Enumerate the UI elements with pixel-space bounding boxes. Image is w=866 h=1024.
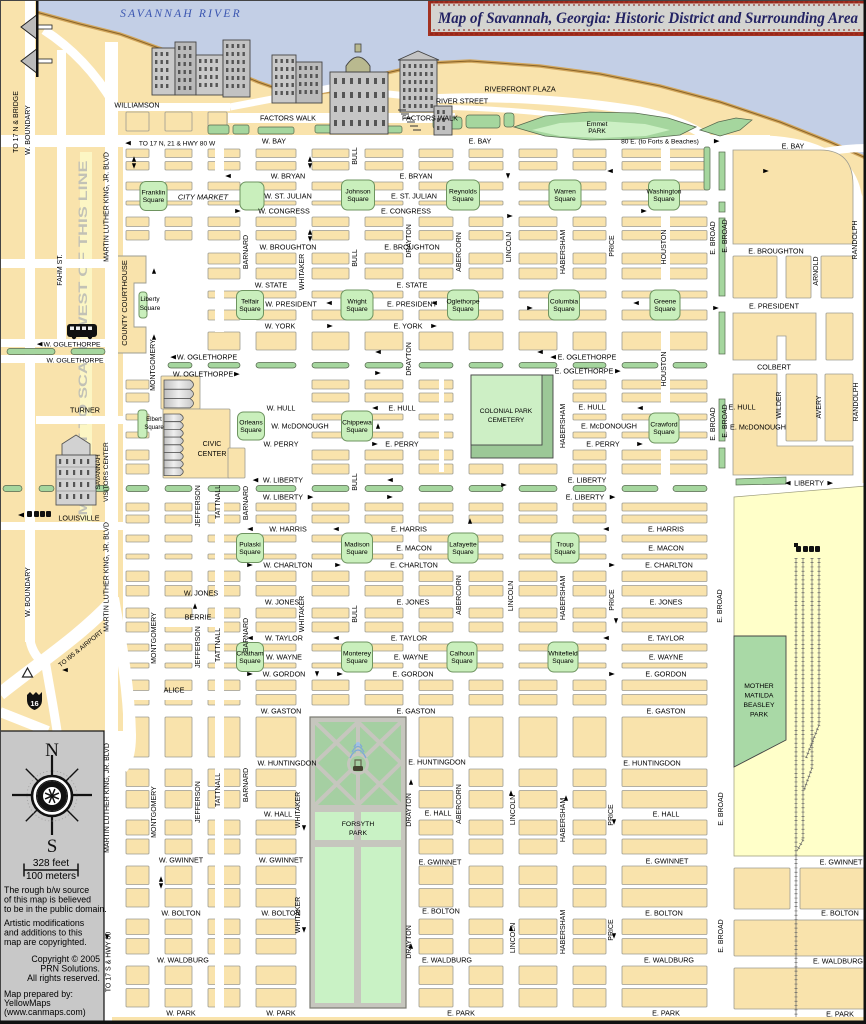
svg-text:E. JONES: E. JONES bbox=[650, 597, 683, 606]
svg-text:Square: Square bbox=[240, 427, 262, 434]
svg-text:Calhoun: Calhoun bbox=[450, 651, 475, 658]
svg-text:E. HARRIS: E. HARRIS bbox=[391, 524, 427, 533]
svg-text:WILLIAMSON: WILLIAMSON bbox=[114, 100, 159, 109]
svg-text:E. BROAD: E. BROAD bbox=[722, 219, 729, 252]
svg-text:DRAYTON: DRAYTON bbox=[406, 224, 413, 258]
svg-text:W. WALDBURG: W. WALDBURG bbox=[157, 955, 209, 964]
svg-text:WHITAKER: WHITAKER bbox=[295, 897, 302, 933]
svg-text:BARNARD: BARNARD bbox=[243, 486, 250, 520]
svg-text:W. CHARLTON: W. CHARLTON bbox=[263, 560, 312, 569]
svg-text:E. TAYLOR: E. TAYLOR bbox=[648, 633, 684, 642]
svg-text:BARNARD: BARNARD bbox=[243, 235, 250, 269]
svg-text:E. BROAD: E. BROAD bbox=[710, 221, 717, 254]
svg-text:COLBERT: COLBERT bbox=[757, 362, 791, 371]
svg-text:Franklin: Franklin bbox=[142, 190, 166, 197]
svg-text:WHITAKER: WHITAKER bbox=[295, 792, 302, 828]
svg-text:Columbia: Columbia bbox=[550, 299, 579, 306]
svg-text:VISITORS CENTER: VISITORS CENTER bbox=[103, 442, 110, 502]
svg-text:Copyright © 2005: Copyright © 2005 bbox=[31, 954, 100, 964]
svg-text:E. HARRIS: E. HARRIS bbox=[648, 524, 684, 533]
svg-text:WHITAKER: WHITAKER bbox=[299, 254, 306, 290]
svg-text:W. BAY: W. BAY bbox=[262, 136, 286, 145]
svg-text:and additions to this: and additions to this bbox=[4, 928, 83, 938]
svg-text:RIVER STREET: RIVER STREET bbox=[436, 96, 489, 105]
svg-text:W. OGLETHORPE: W. OGLETHORPE bbox=[177, 352, 238, 361]
svg-text:W. LIBERTY: W. LIBERTY bbox=[263, 492, 303, 501]
svg-text:W. YORK: W. YORK bbox=[265, 321, 296, 330]
svg-text:Square: Square bbox=[346, 549, 368, 556]
svg-text:Artistic modifications: Artistic modifications bbox=[4, 918, 85, 928]
svg-text:Map of Savannah, Georgia: Hist: Map of Savannah, Georgia: Historic Distr… bbox=[437, 10, 858, 27]
svg-text:HABERSHAM: HABERSHAM bbox=[560, 230, 567, 275]
svg-text:Square: Square bbox=[239, 306, 261, 313]
svg-text:Square: Square bbox=[553, 306, 575, 313]
svg-text:E. CHARLTON: E. CHARLTON bbox=[645, 560, 693, 569]
svg-text:W. McDONOUGH: W. McDONOUGH bbox=[271, 421, 329, 430]
svg-text:E. CHARLTON: E. CHARLTON bbox=[390, 560, 438, 569]
svg-text:E. PARK: E. PARK bbox=[447, 1008, 475, 1017]
svg-text:ALICE: ALICE bbox=[164, 685, 185, 694]
svg-text:W. GASTON: W. GASTON bbox=[261, 706, 302, 715]
svg-text:W. JONES: W. JONES bbox=[184, 588, 219, 597]
svg-text:TATTNALL: TATTNALL bbox=[215, 628, 222, 662]
svg-text:E. BOLTON: E. BOLTON bbox=[821, 908, 859, 917]
svg-text:E. GASTON: E. GASTON bbox=[646, 706, 685, 715]
svg-text:Square: Square bbox=[653, 196, 675, 203]
svg-text:The rough b/w source: The rough b/w source bbox=[4, 885, 89, 895]
svg-text:Square: Square bbox=[143, 197, 165, 204]
svg-text:E. WAYNE: E. WAYNE bbox=[394, 652, 429, 661]
svg-text:MONTGOMERY: MONTGOMERY bbox=[150, 339, 157, 391]
svg-text:Lafayette: Lafayette bbox=[449, 542, 477, 549]
svg-text:HABERSHAM: HABERSHAM bbox=[560, 910, 567, 955]
svg-text:W. CONGRESS: W. CONGRESS bbox=[258, 206, 310, 215]
svg-text:16: 16 bbox=[30, 699, 38, 708]
svg-text:SAVANNAH RIVER: SAVANNAH RIVER bbox=[120, 8, 242, 20]
svg-text:ABERCORN: ABERCORN bbox=[456, 575, 463, 615]
svg-text:80 E. (to Forts & Beaches): 80 E. (to Forts & Beaches) bbox=[621, 138, 699, 145]
svg-text:FORSYTH: FORSYTH bbox=[342, 821, 375, 828]
svg-text:W. WAYNE: W. WAYNE bbox=[266, 652, 302, 661]
svg-text:E. HUNTINGDON: E. HUNTINGDON bbox=[408, 757, 466, 766]
svg-text:AVERY: AVERY bbox=[816, 395, 823, 418]
svg-text:E. CONGRESS: E. CONGRESS bbox=[381, 206, 431, 215]
svg-text:TO 17 N, 21 & HWY 80 W: TO 17 N, 21 & HWY 80 W bbox=[139, 140, 216, 147]
svg-text:to be in the public domain.: to be in the public domain. bbox=[4, 904, 107, 914]
svg-text:CENTER: CENTER bbox=[198, 451, 227, 458]
svg-text:Liberty: Liberty bbox=[140, 296, 160, 303]
svg-text:E. WALDBURG: E. WALDBURG bbox=[644, 955, 694, 964]
svg-text:HABERSHAM: HABERSHAM bbox=[560, 404, 567, 449]
svg-text:SAVANNAH: SAVANNAH bbox=[95, 454, 102, 490]
svg-text:WHITAKER: WHITAKER bbox=[299, 596, 306, 632]
svg-text:S: S bbox=[47, 836, 58, 857]
svg-text:E. McDONOUGH: E. McDONOUGH bbox=[730, 422, 786, 431]
svg-text:W. JONES: W. JONES bbox=[265, 597, 300, 606]
svg-text:Crawford: Crawford bbox=[650, 422, 677, 429]
svg-text:Square: Square bbox=[140, 305, 161, 312]
svg-text:Square: Square bbox=[654, 306, 676, 313]
svg-text:DRAYTON: DRAYTON bbox=[406, 342, 413, 376]
svg-text:W. OGLETHORPE: W. OGLETHORPE bbox=[173, 369, 234, 378]
svg-text:E. LIBERTY: E. LIBERTY bbox=[566, 492, 605, 501]
svg-text:E. MACON: E. MACON bbox=[648, 543, 684, 552]
svg-text:E. GWINNET: E. GWINNET bbox=[820, 857, 863, 866]
svg-text:E. HALL: E. HALL bbox=[425, 808, 452, 817]
svg-text:W. BOUNDARY: W. BOUNDARY bbox=[25, 567, 32, 617]
svg-text:Square: Square bbox=[346, 427, 368, 434]
svg-text:Telfair: Telfair bbox=[241, 299, 260, 306]
svg-text:PRICE: PRICE bbox=[609, 235, 616, 257]
svg-text:W. PARK: W. PARK bbox=[266, 1008, 296, 1017]
svg-text:Square: Square bbox=[452, 549, 474, 556]
svg-text:W. OGLETHORPE: W. OGLETHORPE bbox=[43, 341, 100, 348]
svg-text:ABERCORN: ABERCORN bbox=[456, 784, 463, 824]
svg-text:BEASLEY: BEASLEY bbox=[744, 702, 775, 709]
svg-text:MONTGOMERY: MONTGOMERY bbox=[151, 786, 158, 838]
svg-text:MOTHER: MOTHER bbox=[744, 683, 774, 690]
svg-text:E. GASTON: E. GASTON bbox=[396, 706, 435, 715]
svg-text:E. GWINNET: E. GWINNET bbox=[646, 856, 689, 865]
svg-text:Madison: Madison bbox=[344, 542, 370, 549]
svg-text:Square: Square bbox=[239, 549, 261, 556]
svg-text:JEFFERSON: JEFFERSON bbox=[195, 781, 202, 823]
svg-text:Square: Square bbox=[347, 196, 369, 203]
svg-text:E. PRESIDENT: E. PRESIDENT bbox=[387, 299, 438, 308]
svg-text:MONTGOMERY: MONTGOMERY bbox=[151, 612, 158, 664]
svg-text:RANDOLPH: RANDOLPH bbox=[852, 221, 859, 260]
svg-text:W. GWINNET: W. GWINNET bbox=[159, 855, 204, 864]
svg-text:Chatham: Chatham bbox=[236, 651, 264, 658]
svg-text:PARK: PARK bbox=[588, 128, 606, 135]
svg-text:CITY MARKET: CITY MARKET bbox=[178, 193, 230, 202]
svg-text:E. LIBERTY: E. LIBERTY bbox=[568, 475, 607, 484]
svg-text:W. HARRIS: W. HARRIS bbox=[269, 524, 307, 533]
svg-text:W. BROUGHTON: W. BROUGHTON bbox=[260, 242, 317, 251]
svg-text:Square: Square bbox=[554, 549, 576, 556]
svg-text:CIVIC: CIVIC bbox=[203, 441, 222, 448]
svg-text:E. HULL: E. HULL bbox=[578, 402, 605, 411]
svg-text:LINCOLN: LINCOLN bbox=[506, 232, 513, 262]
svg-text:E. BOLTON: E. BOLTON bbox=[422, 906, 460, 915]
svg-text:Square: Square bbox=[144, 425, 164, 431]
svg-text:E. HULL: E. HULL bbox=[728, 402, 755, 411]
svg-text:W. BOLTON: W. BOLTON bbox=[161, 908, 200, 917]
svg-text:E. YORK: E. YORK bbox=[393, 321, 422, 330]
svg-text:W. LIBERTY: W. LIBERTY bbox=[263, 475, 303, 484]
svg-text:FACTORS WALK: FACTORS WALK bbox=[402, 113, 458, 122]
svg-text:W. GWINNET: W. GWINNET bbox=[259, 855, 304, 864]
svg-text:Chippewa: Chippewa bbox=[342, 420, 372, 427]
svg-text:BULL: BULL bbox=[352, 605, 359, 623]
svg-text:W. PRESIDENT: W. PRESIDENT bbox=[265, 299, 317, 308]
svg-text:Troup: Troup bbox=[556, 542, 574, 549]
svg-text:TATTNALL: TATTNALL bbox=[215, 485, 222, 519]
svg-text:MARTIN LUTHER KING, JR. BLVD: MARTIN LUTHER KING, JR. BLVD bbox=[104, 743, 111, 853]
svg-text:E. PERRY: E. PERRY bbox=[586, 439, 620, 448]
svg-text:Washington: Washington bbox=[646, 189, 681, 196]
svg-text:TATTNALL: TATTNALL bbox=[215, 773, 222, 807]
svg-text:COUNTY COURTHOUSE: COUNTY COURTHOUSE bbox=[120, 260, 129, 346]
svg-text:E. BAY: E. BAY bbox=[469, 136, 492, 145]
svg-text:E. BROAD: E. BROAD bbox=[718, 919, 725, 952]
svg-text:Square: Square bbox=[452, 196, 474, 203]
svg-text:PRN Solutions.: PRN Solutions. bbox=[40, 964, 100, 974]
svg-text:Square: Square bbox=[346, 658, 368, 665]
svg-text:BULL: BULL bbox=[352, 473, 359, 491]
svg-text:PARK: PARK bbox=[750, 712, 768, 719]
svg-text:E. OGLETHORPE: E. OGLETHORPE bbox=[555, 366, 614, 375]
svg-text:HOUSTON: HOUSTON bbox=[661, 230, 668, 265]
svg-text:LOUISVILLE: LOUISVILLE bbox=[58, 513, 99, 522]
svg-text:W. OGLETHORPE: W. OGLETHORPE bbox=[46, 357, 103, 364]
svg-text:E. WAYNE: E. WAYNE bbox=[649, 652, 684, 661]
svg-text:RANDOLPH: RANDOLPH bbox=[853, 383, 860, 422]
svg-text:E. PARK: E. PARK bbox=[652, 1008, 680, 1017]
svg-text:LINCOLN: LINCOLN bbox=[510, 795, 517, 825]
svg-text:W. STATE: W. STATE bbox=[255, 280, 288, 289]
svg-text:E. HALL: E. HALL bbox=[653, 809, 680, 818]
svg-text:Orleans: Orleans bbox=[239, 420, 263, 427]
svg-text:Reynolds: Reynolds bbox=[449, 189, 478, 196]
svg-text:Square: Square bbox=[239, 658, 261, 665]
svg-text:(www.canmaps.com): (www.canmaps.com) bbox=[4, 1007, 86, 1017]
svg-text:E. HUNTINGDON: E. HUNTINGDON bbox=[623, 758, 681, 767]
svg-text:BERRIE: BERRIE bbox=[185, 612, 212, 621]
svg-text:LIBERTY: LIBERTY bbox=[794, 478, 824, 487]
svg-text:E. BROAD: E. BROAD bbox=[718, 792, 725, 825]
svg-text:E. TAYLOR: E. TAYLOR bbox=[391, 633, 427, 642]
svg-text:E. PRESIDENT: E. PRESIDENT bbox=[749, 301, 800, 310]
svg-text:Greene: Greene bbox=[654, 299, 677, 306]
svg-text:Oglethorpe: Oglethorpe bbox=[446, 299, 479, 306]
svg-text:W. HUNTINGDON: W. HUNTINGDON bbox=[257, 758, 316, 767]
svg-text:JEFFERSON: JEFFERSON bbox=[195, 485, 202, 527]
svg-text:E. STATE: E. STATE bbox=[397, 280, 428, 289]
svg-text:HABERSHAM: HABERSHAM bbox=[560, 576, 567, 621]
svg-text:Square: Square bbox=[452, 306, 474, 313]
svg-text:E. WALDBURG: E. WALDBURG bbox=[813, 956, 863, 965]
svg-text:E. McDONOUGH: E. McDONOUGH bbox=[581, 421, 637, 430]
svg-text:E. ST. JULIAN: E. ST. JULIAN bbox=[391, 191, 437, 200]
svg-text:Square: Square bbox=[554, 196, 576, 203]
svg-text:Pulaski: Pulaski bbox=[239, 542, 261, 549]
svg-text:E. BRYAN: E. BRYAN bbox=[400, 171, 433, 180]
svg-text:W. PARK: W. PARK bbox=[166, 1008, 196, 1017]
svg-text:E. GWINNET: E. GWINNET bbox=[419, 857, 462, 866]
svg-text:Square: Square bbox=[346, 306, 368, 313]
svg-text:HABERSHAM: HABERSHAM bbox=[560, 798, 567, 843]
svg-text:TO 17 S & HWY 80: TO 17 S & HWY 80 bbox=[106, 932, 113, 993]
svg-text:TO 17 N & BRIDGE: TO 17 N & BRIDGE bbox=[13, 91, 20, 153]
svg-text:N: N bbox=[45, 740, 59, 761]
svg-text:map are copyrighted.: map are copyrighted. bbox=[4, 937, 87, 947]
svg-text:W. HALL: W. HALL bbox=[264, 809, 292, 818]
svg-text:E. HULL: E. HULL bbox=[388, 403, 415, 412]
svg-text:FAHM ST.: FAHM ST. bbox=[57, 254, 64, 286]
svg-text:W. ST. JULIAN: W. ST. JULIAN bbox=[264, 191, 312, 200]
svg-text:Emmet: Emmet bbox=[587, 121, 608, 128]
svg-text:BARNARD: BARNARD bbox=[243, 618, 250, 652]
svg-text:Johnson: Johnson bbox=[345, 189, 371, 196]
svg-text:E. PERRY: E. PERRY bbox=[385, 439, 419, 448]
svg-text:Wright: Wright bbox=[347, 299, 366, 306]
svg-text:DRAYTON: DRAYTON bbox=[406, 925, 413, 959]
svg-text:DRAYTON: DRAYTON bbox=[406, 793, 413, 827]
svg-text:BULL: BULL bbox=[352, 147, 359, 165]
svg-text:COLONIAL PARK: COLONIAL PARK bbox=[480, 408, 533, 415]
svg-text:W. GORDON: W. GORDON bbox=[263, 669, 306, 678]
svg-text:CEMETERY: CEMETERY bbox=[488, 417, 525, 424]
svg-text:JEFFERSON: JEFFERSON bbox=[195, 626, 202, 668]
svg-text:WILDER: WILDER bbox=[776, 391, 783, 418]
svg-text:328 feet: 328 feet bbox=[33, 858, 69, 869]
svg-text:W. HULL: W. HULL bbox=[267, 403, 296, 412]
svg-text:Square: Square bbox=[451, 658, 473, 665]
svg-text:Warren: Warren bbox=[554, 189, 576, 196]
svg-text:E. GORDON: E. GORDON bbox=[392, 669, 433, 678]
svg-text:Whitefield: Whitefield bbox=[548, 651, 578, 658]
svg-text:LINCOLN: LINCOLN bbox=[508, 581, 515, 611]
svg-text:W. PERRY: W. PERRY bbox=[263, 439, 298, 448]
svg-text:Monterey: Monterey bbox=[343, 651, 372, 658]
svg-text:E. MACON: E. MACON bbox=[396, 543, 432, 552]
svg-text:E. OGLETHORPE: E. OGLETHORPE bbox=[558, 352, 617, 361]
svg-text:MARTIN LUTHER KING, JR. BLVD: MARTIN LUTHER KING, JR. BLVD bbox=[104, 152, 111, 262]
svg-text:E. BROAD: E. BROAD bbox=[710, 407, 717, 440]
svg-text:RIVERFRONT PLAZA: RIVERFRONT PLAZA bbox=[484, 84, 556, 93]
svg-text:E. BROUGHTON: E. BROUGHTON bbox=[748, 246, 803, 255]
svg-text:100 meters: 100 meters bbox=[26, 871, 76, 882]
svg-text:ABERCORN: ABERCORN bbox=[456, 232, 463, 272]
svg-text:PRICE: PRICE bbox=[609, 589, 616, 611]
svg-text:Elbert: Elbert bbox=[146, 417, 162, 423]
svg-text:MATILDA: MATILDA bbox=[745, 693, 774, 700]
svg-text:E. WALDBURG: E. WALDBURG bbox=[422, 955, 472, 964]
svg-text:E. GORDON: E. GORDON bbox=[645, 669, 686, 678]
svg-text:ARNOLD: ARNOLD bbox=[813, 256, 820, 285]
svg-text:BARNARD: BARNARD bbox=[243, 768, 250, 802]
svg-text:All rights reserved.: All rights reserved. bbox=[27, 973, 100, 983]
svg-text:HOUSTON: HOUSTON bbox=[661, 352, 668, 387]
svg-text:MARTIN LUTHER KING, JR. BLVD: MARTIN LUTHER KING, JR. BLVD bbox=[104, 522, 111, 632]
svg-text:E. BAY: E. BAY bbox=[782, 141, 805, 150]
svg-text:TURNER: TURNER bbox=[70, 405, 100, 414]
svg-text:Square: Square bbox=[552, 658, 574, 665]
svg-text:PARK: PARK bbox=[349, 830, 367, 837]
svg-text:E. BOLTON: E. BOLTON bbox=[645, 908, 683, 917]
svg-text:BULL: BULL bbox=[352, 249, 359, 267]
svg-text:W. BOUNDARY: W. BOUNDARY bbox=[25, 105, 32, 155]
svg-text:FACTORS WALK: FACTORS WALK bbox=[260, 113, 316, 122]
svg-text:Square: Square bbox=[653, 429, 675, 436]
svg-text:of this map is believed: of this map is believed bbox=[4, 895, 91, 905]
svg-text:W. TAYLOR: W. TAYLOR bbox=[265, 633, 303, 642]
svg-text:W. BRYAN: W. BRYAN bbox=[271, 171, 305, 180]
svg-text:E. JONES: E. JONES bbox=[397, 597, 430, 606]
svg-text:E. BROAD: E. BROAD bbox=[722, 404, 729, 437]
svg-text:E. BROAD: E. BROAD bbox=[717, 589, 724, 622]
